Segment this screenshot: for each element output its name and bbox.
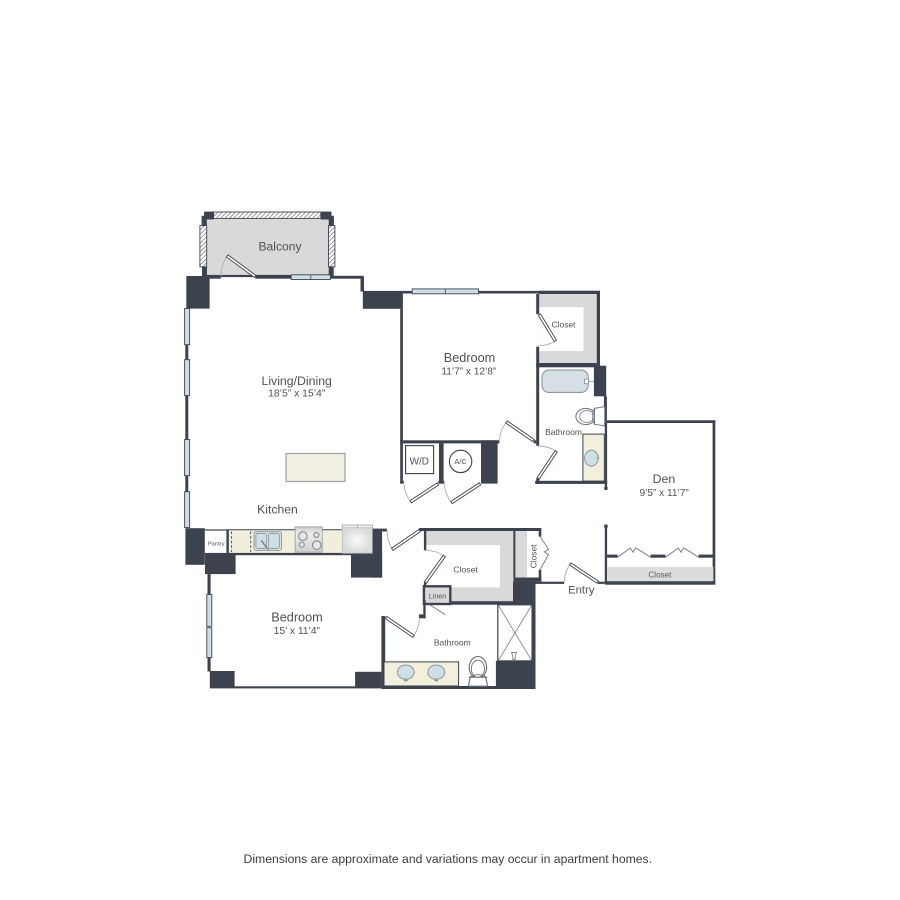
svg-text:Closet: Closet [648, 570, 672, 579]
svg-text:Pantry: Pantry [208, 541, 225, 547]
svg-text:Balcony: Balcony [258, 239, 302, 253]
svg-text:11’7” x 12’8”: 11’7” x 12’8” [441, 367, 496, 378]
svg-text:Den: Den [653, 472, 676, 486]
svg-text:Entry: Entry [568, 585, 595, 597]
svg-text:Kitchen: Kitchen [257, 503, 298, 517]
svg-text:9’5” x 11’7”: 9’5” x 11’7” [640, 488, 689, 499]
svg-text:Bathroom: Bathroom [545, 427, 582, 437]
svg-text:Linen: Linen [429, 592, 446, 600]
svg-text:Bedroom: Bedroom [444, 351, 495, 365]
svg-text:18’5” x 15’4”: 18’5” x 15’4” [268, 389, 326, 400]
svg-text:Bedroom: Bedroom [271, 611, 322, 625]
svg-text:Closet: Closet [552, 319, 576, 329]
svg-text:15’ x 11’4”: 15’ x 11’4” [274, 626, 321, 637]
svg-text:Dimensions are approximate and: Dimensions are approximate and variation… [244, 852, 652, 866]
svg-text:Bathroom: Bathroom [434, 638, 471, 648]
svg-text:W/D: W/D [410, 456, 429, 467]
svg-text:Living/Dining: Living/Dining [261, 374, 332, 388]
svg-text:Closet: Closet [453, 565, 478, 575]
svg-text:A/C: A/C [454, 457, 467, 466]
svg-text:Closet: Closet [529, 544, 539, 568]
